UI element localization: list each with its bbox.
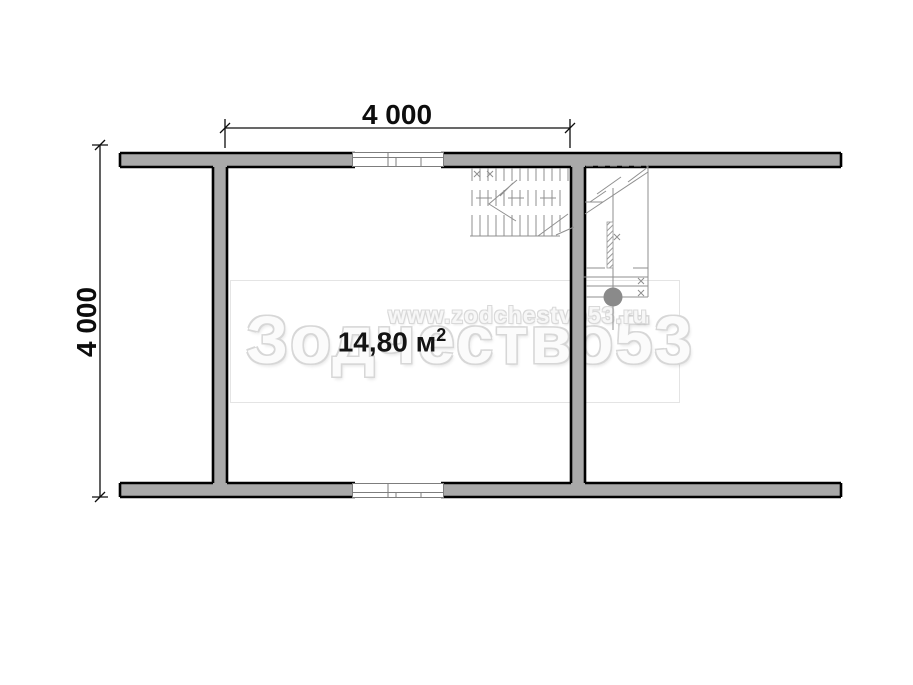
window-symbol-bottom [353, 484, 444, 498]
room-area-exponent: 2 [436, 325, 446, 345]
dimension-label-top: 4 000 [362, 99, 432, 130]
room-area-label: 14,80 м2 [292, 325, 492, 358]
dimension-label-left: 4 000 [71, 287, 102, 357]
ladder-marker-circle [604, 288, 623, 307]
window-symbol-top [353, 153, 444, 167]
floor-plan-canvas: Зодчество53 www.zodchestvo53.ru [0, 0, 913, 685]
room-area-unit: м [416, 326, 437, 357]
room-area-value: 14,80 [338, 326, 408, 357]
staircase-symbol [470, 168, 574, 236]
ladder-symbol [583, 166, 648, 330]
